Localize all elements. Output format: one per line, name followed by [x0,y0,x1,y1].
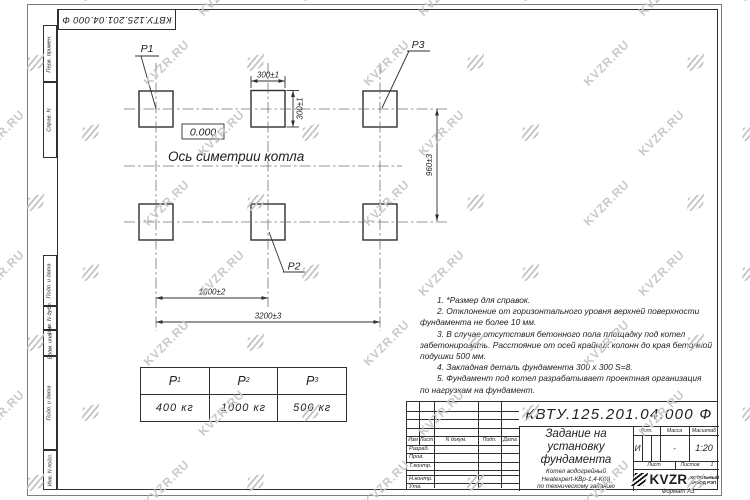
row-utv: Утв. [407,483,434,490]
kvzr-stripes-icon [631,473,649,486]
load-value-p2: 1000 кг [210,395,279,422]
strip-cell-podp-data-1: Подп. и дата [43,255,57,306]
row-nkontr: Н.контр. [407,475,434,484]
top-stamp-doc-number: КВТУ.125.201.04.000 Ф [62,14,172,25]
scale-label: Масштаб [689,426,719,435]
col-izm: Изм [407,436,419,445]
col-podp: Подп. [478,436,501,445]
title-block: Изм Лист N докум. Подп. Дата Разраб. Про… [406,401,718,490]
kvzr-logo-text: KVZR [649,472,687,487]
company-logo: KVZR КОТЕЛЬНЫЙ ЗАВОД РЭП [633,469,719,490]
note-line: 5. Фундамент под котел разрабатывает про… [420,373,718,384]
note-line: фундамента не более 10 мм. [420,317,718,328]
load-table-value-row: 400 кг 1000 кг 500 кг [141,395,346,422]
elevation-value: 0.000 [190,127,216,139]
col-data: Дата [501,436,519,445]
row-tkontr: Т.контр. [407,462,434,471]
drawing-title: Задание на установку фундамента [519,426,633,469]
scale-value: 1:20 [689,435,719,461]
load-table-header-row: P1 P2 P3 [141,368,346,395]
format-label: Формат А3 [630,489,726,495]
doc-number: КВТУ.125.201.04.000 Ф [519,402,719,426]
strip-cell-podp-data-2: Подп. и дата [43,356,57,450]
note-line: 2. Отклонение от горизонтального уровня … [420,306,718,317]
lit-label: Лит. [633,426,660,435]
strip-cell-vzam-inv: Взам. инв. N [43,330,57,356]
note-line: 3. В случае отсутствия бетонного пола пл… [420,329,718,340]
sheet-label: Лист [633,461,675,469]
load-table-header-p1: P1 [141,368,210,395]
note-line: забетонировать. Расстояние от осей крайн… [420,340,718,351]
row-razrab: Разраб. [407,445,434,454]
top-reversed-stamp: КВТУ.125.201.04.000 Ф [58,9,176,30]
col-list: Лист [419,436,434,445]
load-value-p1: 400 кг [141,395,210,422]
lit-value: И [633,435,642,461]
note-line: 4. Закладная деталь фундамента 300 x 300… [420,362,718,373]
label-p1: P1 [141,43,154,55]
dim-1600: 1600±2 [199,288,226,297]
dim-300-vertical: 300±1 [296,97,305,119]
dim-300-horizontal: 300±1 [257,71,279,80]
strip-cell-sprav-n: Справ. N [43,82,57,158]
load-value-p3: 500 кг [278,395,346,422]
note-line: подушки 500 мм. [420,351,718,362]
strip-cell-inv-podl: Инв. N подл. [43,450,57,490]
load-table: P1 P2 P3 400 кг 1000 кг 500 кг [140,367,347,422]
note-line: по нагрузкам на фундамент. [420,385,718,396]
strip-cell-perv-primen: Перв. примен. [43,25,57,82]
sheets-label: Листов [675,461,705,469]
load-table-header-p2: P2 [210,368,279,395]
sheets-count: 1 [705,461,719,469]
kvzr-logo-subtext: КОТЕЛЬНЫЙ ЗАВОД РЭП [690,475,719,485]
label-p2: P2 [288,261,301,273]
mass-label: Масса [660,426,689,435]
dim-3200: 3200±3 [255,312,282,321]
label-p3: P3 [412,39,425,51]
row-prov: Пров. [407,453,434,462]
mass-value: - [660,435,689,461]
col-ndokum: N докум. [434,436,478,445]
product-name: Котел водогрейный Heatexpert-КВр-1,4-К(К… [519,469,633,490]
technical-notes: 1. *Размер для справок. 2. Отклонение от… [420,295,718,396]
boiler-symmetry-axis-label: Ось симетрии котла [168,149,305,164]
note-line: 1. *Размер для справок. [420,295,718,306]
load-table-header-p3: P3 [278,368,346,395]
dim-960: 960±3 [425,153,434,176]
